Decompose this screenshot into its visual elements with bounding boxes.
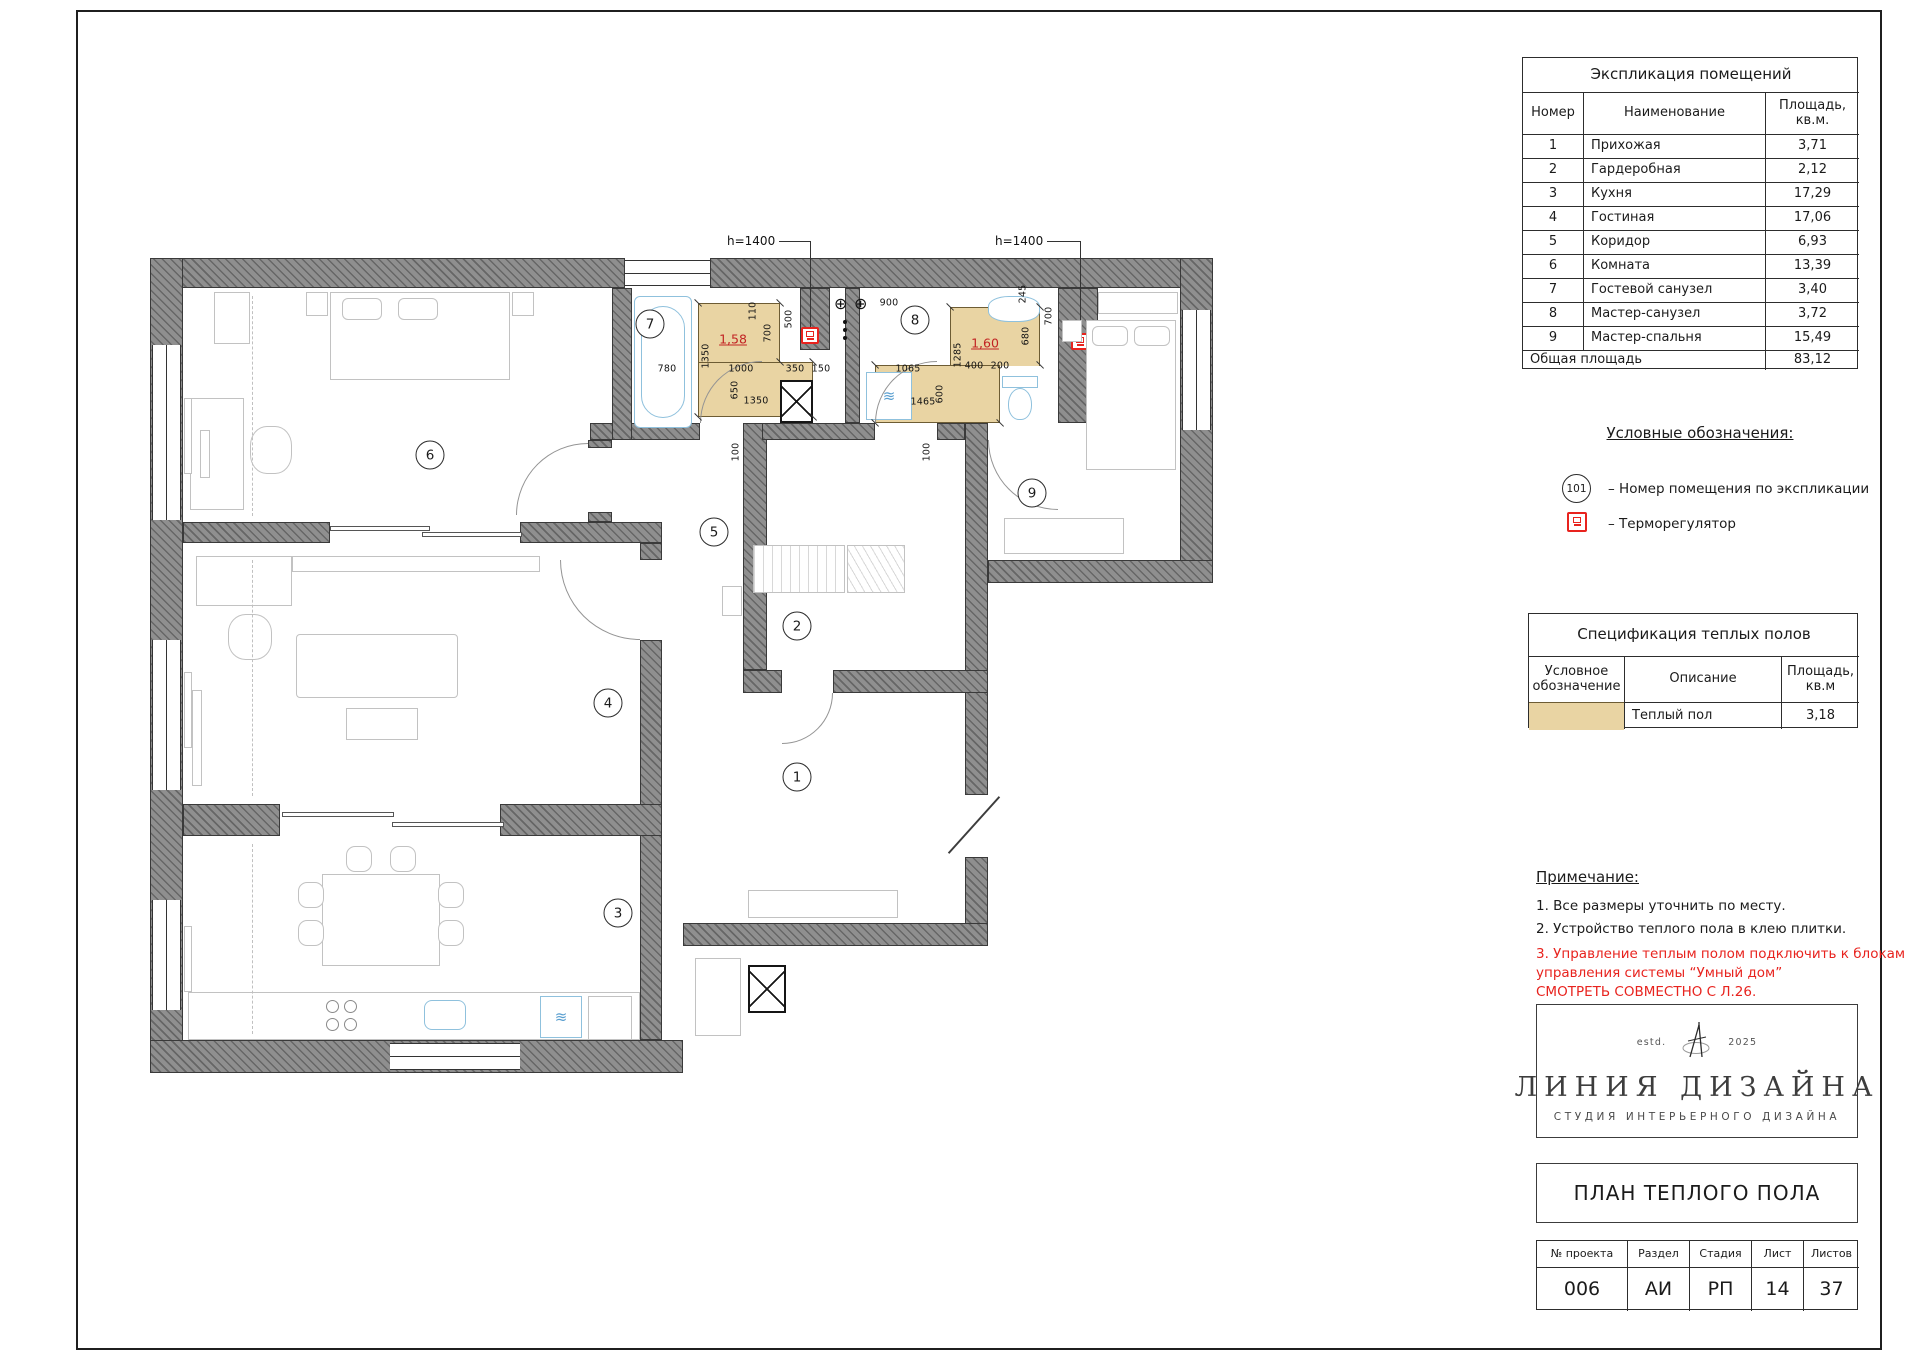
window bbox=[625, 260, 710, 286]
pillow bbox=[1134, 326, 1170, 346]
column-header: Площадь, кв.м. bbox=[1765, 92, 1859, 134]
column-header: Площадь, кв.м bbox=[1781, 656, 1859, 702]
kitchen-sink bbox=[424, 1000, 466, 1030]
row-num: 5 bbox=[1523, 230, 1583, 254]
row-name: Гостевой санузел bbox=[1583, 278, 1765, 302]
logo-name: ЛИНИЯ ДИЗАЙНА bbox=[1515, 1072, 1880, 1103]
wall bbox=[612, 288, 632, 440]
dining-table bbox=[322, 874, 440, 966]
fridge bbox=[588, 996, 632, 1040]
chair bbox=[346, 846, 372, 872]
wall bbox=[588, 512, 612, 522]
hob-burner bbox=[326, 1018, 339, 1031]
wall bbox=[183, 804, 280, 836]
pipe-dot bbox=[843, 320, 847, 324]
radiator bbox=[184, 398, 192, 474]
dimension-tick bbox=[996, 419, 1004, 427]
wall bbox=[965, 423, 988, 795]
radiator bbox=[184, 926, 192, 992]
room-number-5: 5 bbox=[700, 518, 729, 547]
notes-title: Примечание: bbox=[1536, 868, 1639, 886]
stamp-header: Стадия bbox=[1689, 1241, 1751, 1267]
dimension-label: 600 bbox=[935, 385, 946, 404]
row-area: 3,40 bbox=[1765, 278, 1859, 302]
row-name: Гостиная bbox=[1583, 206, 1765, 230]
column-header-line: Площадь, bbox=[1779, 99, 1846, 114]
wall bbox=[743, 670, 782, 693]
pipe-dot bbox=[843, 336, 847, 340]
ventilation-shaft bbox=[780, 380, 813, 423]
row-area: 3,72 bbox=[1765, 302, 1859, 326]
hall-cabinet bbox=[748, 890, 898, 918]
row-name: Комната bbox=[1583, 254, 1765, 278]
hob-burner bbox=[344, 1018, 357, 1031]
leader-line bbox=[810, 241, 811, 327]
wall bbox=[710, 258, 1213, 288]
row-name: Кухня bbox=[1583, 182, 1765, 206]
row-area: 17,06 bbox=[1765, 206, 1859, 230]
logo-estd: estd. bbox=[1637, 1037, 1667, 1048]
note-line: 2. Устройство теплого пола в клею плитки… bbox=[1536, 921, 1846, 937]
sliding-door bbox=[392, 822, 504, 827]
logo-box: estd. 2025 ЛИНИЯ ДИЗАЙНА СТУДИЯ ИНТЕРЬЕР… bbox=[1536, 1004, 1858, 1138]
wall bbox=[588, 440, 612, 448]
hob-burner bbox=[326, 1000, 339, 1013]
floor-plan: 1,58 1,60 h=1400 h=1400 ≋ ⊕ ⊕ bbox=[0, 0, 1300, 1358]
column-header-line: обозначение bbox=[1533, 680, 1621, 695]
axis-dashed-line bbox=[252, 844, 253, 1034]
dimension-label: 245 bbox=[1018, 285, 1029, 304]
wall bbox=[683, 923, 988, 946]
nightstand bbox=[512, 292, 534, 316]
thermostat-legend-icon bbox=[1567, 512, 1587, 532]
room-number-9: 9 bbox=[1018, 479, 1047, 508]
row-area: 13,39 bbox=[1765, 254, 1859, 278]
monitor bbox=[200, 430, 210, 478]
pipe-dot bbox=[843, 328, 847, 332]
row-area: 2,12 bbox=[1765, 158, 1859, 182]
legend-title: Условные обозначения: bbox=[1560, 424, 1840, 442]
window bbox=[152, 900, 181, 1010]
wall bbox=[762, 423, 875, 440]
row-num: 8 bbox=[1523, 302, 1583, 326]
height-label-2: h=1400 bbox=[995, 234, 1043, 248]
pillow bbox=[1092, 326, 1128, 346]
sofa bbox=[296, 634, 458, 698]
stamp-header: № проекта bbox=[1537, 1241, 1627, 1267]
valve-icon: ⊕ bbox=[854, 296, 867, 312]
spec-area: 3,18 bbox=[1781, 702, 1859, 729]
chair bbox=[250, 426, 292, 474]
stamp-value: 37 bbox=[1803, 1267, 1859, 1311]
logo-subtitle: СТУДИЯ ИНТЕРЬЕРНОГО ДИЗАЙНА bbox=[1554, 1111, 1840, 1123]
stamp-table: № проекта Раздел Стадия Лист Листов 006 … bbox=[1536, 1240, 1858, 1310]
row-name: Мастер-санузел bbox=[1583, 302, 1765, 326]
dimension-label: 1350 bbox=[744, 396, 769, 407]
column-header: Номер bbox=[1523, 92, 1583, 134]
sliding-door bbox=[330, 526, 430, 531]
row-name: Коридор bbox=[1583, 230, 1765, 254]
dimension-label: 780 bbox=[658, 364, 677, 375]
dimension-label: 100 bbox=[731, 443, 742, 462]
room-number-7: 7 bbox=[636, 310, 665, 339]
console bbox=[722, 586, 742, 616]
dishwasher: ≋ bbox=[540, 996, 582, 1038]
dimension-label: 700 bbox=[763, 324, 774, 343]
nightstand bbox=[1062, 320, 1082, 342]
column-header: Описание bbox=[1624, 656, 1781, 702]
pillow bbox=[342, 298, 382, 320]
door-arc bbox=[560, 560, 640, 640]
stamp-header: Раздел bbox=[1627, 1241, 1689, 1267]
spec-desc: Теплый пол bbox=[1624, 702, 1781, 729]
chair bbox=[438, 920, 464, 946]
door-arc bbox=[516, 443, 588, 515]
dimension-label: 1000 bbox=[729, 364, 754, 375]
pillow bbox=[398, 298, 438, 320]
row-area: 17,29 bbox=[1765, 182, 1859, 206]
spec-table: Спецификация теплых полов Условное обозн… bbox=[1528, 613, 1858, 728]
tv-console bbox=[192, 690, 202, 786]
column-header-line: кв.м. bbox=[1796, 114, 1830, 129]
column-header-line: Площадь, bbox=[1787, 665, 1854, 680]
valve-icon: ⊕ bbox=[834, 296, 847, 312]
dimension-label: 350 bbox=[786, 364, 805, 375]
sliding-door bbox=[422, 532, 522, 537]
compass-icon bbox=[1680, 1020, 1714, 1066]
thermostat-icon bbox=[801, 327, 819, 344]
total-value: 83,12 bbox=[1765, 350, 1859, 370]
hob-burner bbox=[344, 1000, 357, 1013]
dimension-label: 900 bbox=[880, 298, 899, 309]
note-line-red: управления системы “Умный дом” bbox=[1536, 965, 1782, 981]
leader-line bbox=[1047, 241, 1080, 242]
spec-swatch-cell bbox=[1529, 702, 1624, 729]
desk bbox=[190, 398, 244, 510]
wall bbox=[640, 640, 662, 1040]
leader-line bbox=[779, 241, 810, 242]
appliance-cabinet bbox=[695, 958, 741, 1036]
washbasin bbox=[988, 296, 1040, 322]
window bbox=[152, 345, 181, 520]
wall bbox=[988, 560, 1213, 583]
row-num: 3 bbox=[1523, 182, 1583, 206]
dimension-label: 1350 bbox=[701, 344, 712, 369]
stamp-value: 14 bbox=[1751, 1267, 1803, 1311]
dimension-label: 500 bbox=[784, 310, 795, 329]
room-number-2: 2 bbox=[783, 612, 812, 641]
row-num: 4 bbox=[1523, 206, 1583, 230]
drawing-sheet: 1,58 1,60 h=1400 h=1400 ≋ ⊕ ⊕ bbox=[0, 0, 1920, 1358]
column-header-line: Условное bbox=[1545, 665, 1608, 680]
axis-dashed-line bbox=[252, 560, 253, 796]
dresser bbox=[214, 292, 250, 344]
dimension-label: 700 bbox=[1044, 307, 1055, 326]
total-label: Общая площадь bbox=[1523, 350, 1765, 370]
chair bbox=[438, 882, 464, 908]
row-num: 2 bbox=[1523, 158, 1583, 182]
room-number-3: 3 bbox=[604, 899, 633, 928]
dimension-label: 1065 bbox=[896, 364, 921, 375]
sliding-door bbox=[282, 812, 394, 817]
row-name: Прихожая bbox=[1583, 134, 1765, 158]
warm-floor-area-label-1: 1,58 bbox=[719, 332, 747, 347]
dimension-label: 110 bbox=[748, 302, 759, 321]
chair bbox=[228, 614, 272, 660]
dimension-label: 400 bbox=[965, 361, 984, 372]
dimension-label: 200 bbox=[991, 361, 1010, 372]
explication-title: Экспликация помещений bbox=[1523, 58, 1859, 92]
room-number-8: 8 bbox=[901, 306, 930, 335]
coffee-table bbox=[346, 708, 418, 740]
room-number-legend-icon: 101 bbox=[1562, 474, 1591, 503]
closet-rod bbox=[753, 545, 845, 593]
spec-title: Спецификация теплых полов bbox=[1529, 614, 1859, 656]
row-area: 6,93 bbox=[1765, 230, 1859, 254]
column-header-line: кв.м bbox=[1806, 680, 1835, 695]
legend-item-text: – Терморегулятор bbox=[1608, 516, 1736, 532]
entry-door-leaf bbox=[948, 796, 1000, 854]
closet-shelves bbox=[847, 545, 905, 593]
wall bbox=[937, 423, 965, 440]
dresser bbox=[1004, 518, 1124, 554]
row-area: 3,71 bbox=[1765, 134, 1859, 158]
wall bbox=[640, 543, 662, 560]
wardrobe bbox=[1098, 292, 1178, 314]
note-line-red: 3. Управление теплым полом подключить к … bbox=[1536, 946, 1905, 962]
row-num: 9 bbox=[1523, 326, 1583, 350]
window bbox=[152, 640, 181, 790]
note-line: 1. Все размеры уточнить по месту. bbox=[1536, 898, 1786, 914]
chair bbox=[390, 846, 416, 872]
column-header: Условное обозначение bbox=[1529, 656, 1624, 702]
shelf bbox=[292, 556, 540, 572]
desk bbox=[196, 556, 292, 606]
row-name: Мастер-спальня bbox=[1583, 326, 1765, 350]
row-num: 7 bbox=[1523, 278, 1583, 302]
row-area: 15,49 bbox=[1765, 326, 1859, 350]
window bbox=[1182, 310, 1211, 430]
toilet-bowl bbox=[1008, 388, 1032, 420]
row-name: Гардеробная bbox=[1583, 158, 1765, 182]
dimension-label: 680 bbox=[1021, 327, 1032, 346]
wall bbox=[833, 670, 988, 693]
chair bbox=[298, 920, 324, 946]
stamp-value: 006 bbox=[1537, 1267, 1627, 1311]
warm-floor-swatch bbox=[1529, 702, 1624, 730]
stamp-header: Лист bbox=[1751, 1241, 1803, 1267]
stamp-value: АИ bbox=[1627, 1267, 1689, 1311]
legend-item-text: – Номер помещения по экспликации bbox=[1608, 481, 1869, 497]
dimension-label: 1285 bbox=[953, 343, 964, 368]
stamp-value: РП bbox=[1689, 1267, 1751, 1311]
axis-dashed-line bbox=[252, 296, 253, 516]
wall bbox=[183, 522, 330, 543]
wall bbox=[500, 804, 662, 836]
radiator bbox=[184, 672, 192, 748]
dimension-label: 1465 bbox=[911, 397, 936, 408]
wall bbox=[520, 522, 662, 543]
sheet-title-box: ПЛАН ТЕПЛОГО ПОЛА bbox=[1536, 1163, 1858, 1223]
chair bbox=[298, 882, 324, 908]
door-arc bbox=[782, 693, 833, 744]
height-label-1: h=1400 bbox=[727, 234, 775, 248]
note-line-red: СМОТРЕТЬ СОВМЕСТНО С Л.26. bbox=[1536, 984, 1756, 1000]
logo-year: 2025 bbox=[1728, 1037, 1757, 1048]
nightstand bbox=[306, 292, 328, 316]
room-number-1: 1 bbox=[783, 763, 812, 792]
stamp-header: Листов bbox=[1803, 1241, 1859, 1267]
row-num: 6 bbox=[1523, 254, 1583, 278]
column-header: Наименование bbox=[1583, 92, 1765, 134]
room-number-4: 4 bbox=[594, 689, 623, 718]
wall bbox=[150, 258, 625, 288]
window bbox=[390, 1043, 520, 1070]
explication-table: Экспликация помещений Номер Наименование… bbox=[1522, 57, 1858, 369]
dimension-label: 650 bbox=[730, 381, 741, 400]
ventilation-shaft bbox=[748, 965, 786, 1013]
dimension-label: 100 bbox=[922, 443, 933, 462]
room-number-6: 6 bbox=[416, 441, 445, 470]
toilet-tank bbox=[1002, 376, 1038, 388]
warm-floor-area-label-2: 1,60 bbox=[971, 336, 999, 351]
row-num: 1 bbox=[1523, 134, 1583, 158]
